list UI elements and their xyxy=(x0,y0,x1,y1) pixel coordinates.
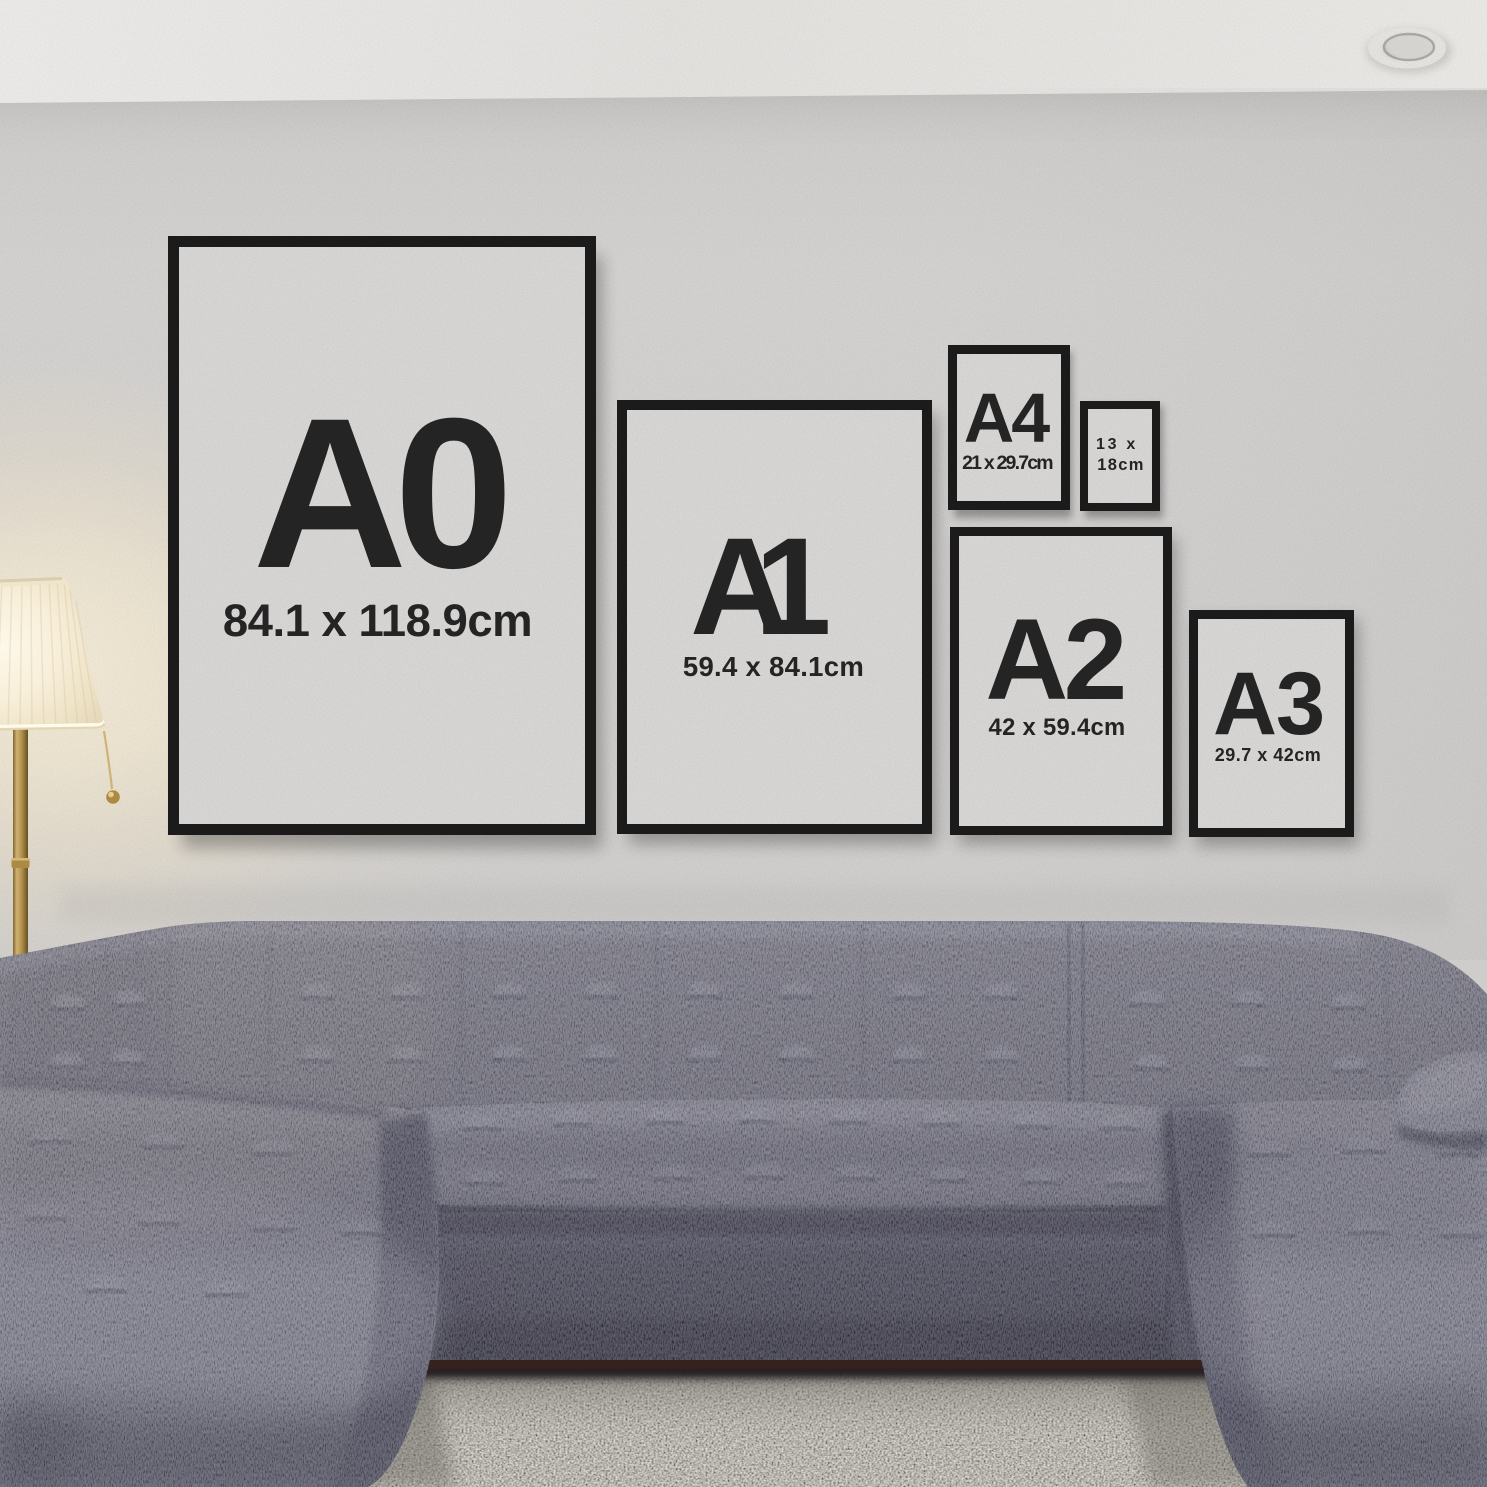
svg-text:A0: A0 xyxy=(253,374,506,613)
svg-text:21 x 29.7cm: 21 x 29.7cm xyxy=(962,452,1053,474)
svg-text:42 x 59.4cm: 42 x 59.4cm xyxy=(989,714,1126,741)
svg-text:A2: A2 xyxy=(985,596,1123,724)
svg-text:84.1 x 118.9cm: 84.1 x 118.9cm xyxy=(223,595,532,646)
svg-text:13 x: 13 x xyxy=(1096,436,1138,453)
svg-text:A3: A3 xyxy=(1213,654,1324,753)
svg-text:18cm: 18cm xyxy=(1097,456,1144,474)
svg-text:59.4 x 84.1cm: 59.4 x 84.1cm xyxy=(683,651,864,682)
svg-text:A4: A4 xyxy=(964,379,1051,457)
svg-text:29.7 x 42cm: 29.7 x 42cm xyxy=(1215,745,1322,765)
